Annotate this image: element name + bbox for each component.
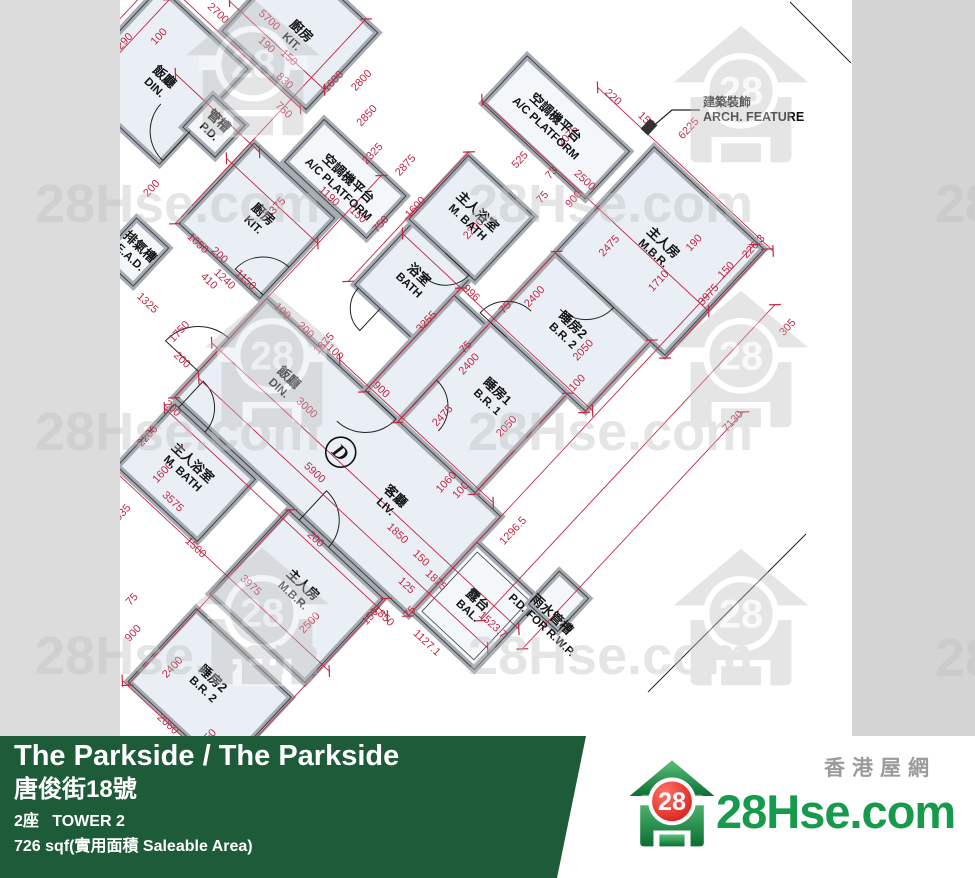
svg-text:28: 28: [250, 334, 294, 378]
svg-text:28: 28: [658, 788, 686, 816]
brand-tagline: 香港屋網: [824, 752, 936, 782]
saleable-area-label: 726 sqf(實用面積 Saleable Area): [14, 837, 399, 857]
footer-text-block: The Parkside / The Parkside 唐俊街18號 2座 TO…: [14, 740, 399, 857]
tower-label: 2座 TOWER 2: [14, 812, 399, 832]
watermark-text: 28Hse.com: [468, 174, 753, 234]
brand-logo-block[interactable]: 28 28Hse.com 香港屋網: [626, 750, 971, 860]
footer-green-panel: The Parkside / The Parkside 唐俊街18號 2座 TO…: [0, 736, 640, 878]
floor-plan-svg: 2700570015016001290100200190830160028007…: [0, 0, 975, 740]
brand-name: 28Hse.com: [716, 784, 955, 839]
estate-title: The Parkside / The Parkside: [14, 740, 399, 773]
estate-address: 唐俊街18號: [14, 775, 399, 805]
watermark-text: 28Hse.com: [468, 402, 753, 462]
watermark-text: 28Hse.com: [35, 402, 320, 462]
watermark-text: 28Hse.com: [35, 174, 320, 234]
watermark-text-partial: 28: [935, 628, 975, 688]
floor-plan-page: 2700570015016001290100200190830160028007…: [0, 0, 975, 878]
watermark-text: 28Hse.com: [468, 626, 753, 686]
brand-house-glyph: 28: [630, 760, 715, 847]
svg-text:28: 28: [719, 334, 763, 378]
watermark-text-partial: 28: [935, 174, 975, 234]
svg-text:28: 28: [719, 69, 763, 113]
svg-text:28: 28: [231, 42, 275, 86]
watermark-text: 28Hse.com: [35, 626, 320, 686]
footer-bar: The Parkside / The Parkside 唐俊街18號 2座 TO…: [0, 736, 975, 878]
brand-house-icon: 28: [626, 752, 718, 856]
